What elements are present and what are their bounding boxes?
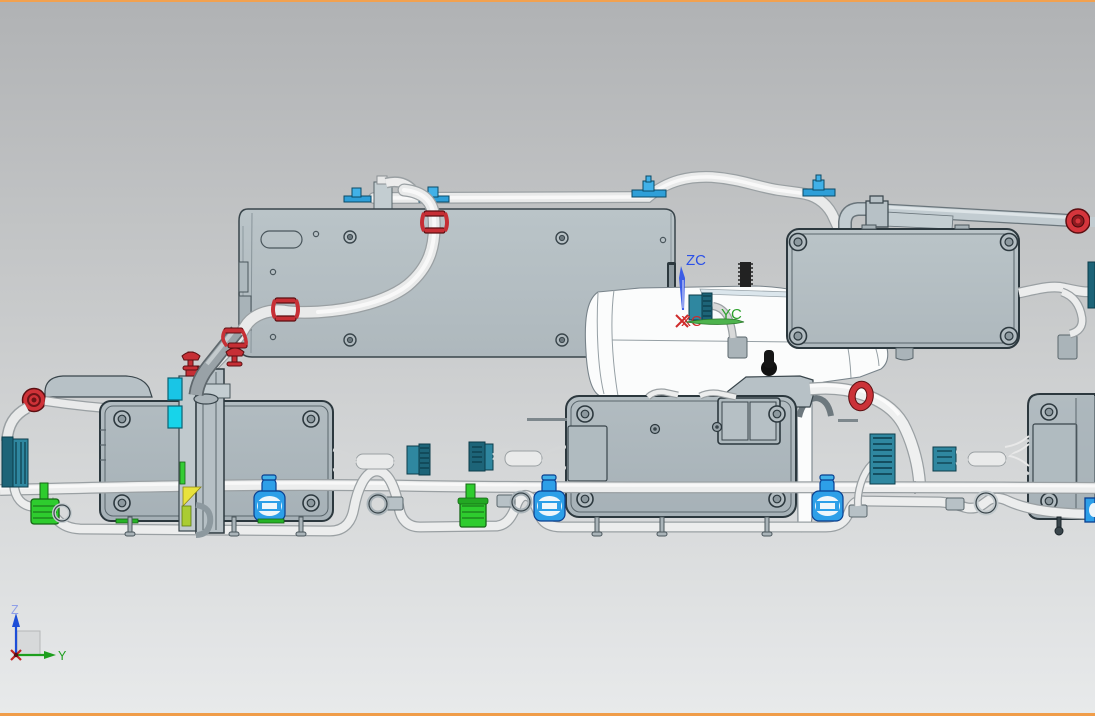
- svg-text:YC: YC: [721, 306, 742, 323]
- svg-text:Y: Y: [58, 649, 67, 663]
- svg-text:ZC: ZC: [686, 252, 706, 269]
- svg-text:Z: Z: [11, 603, 19, 617]
